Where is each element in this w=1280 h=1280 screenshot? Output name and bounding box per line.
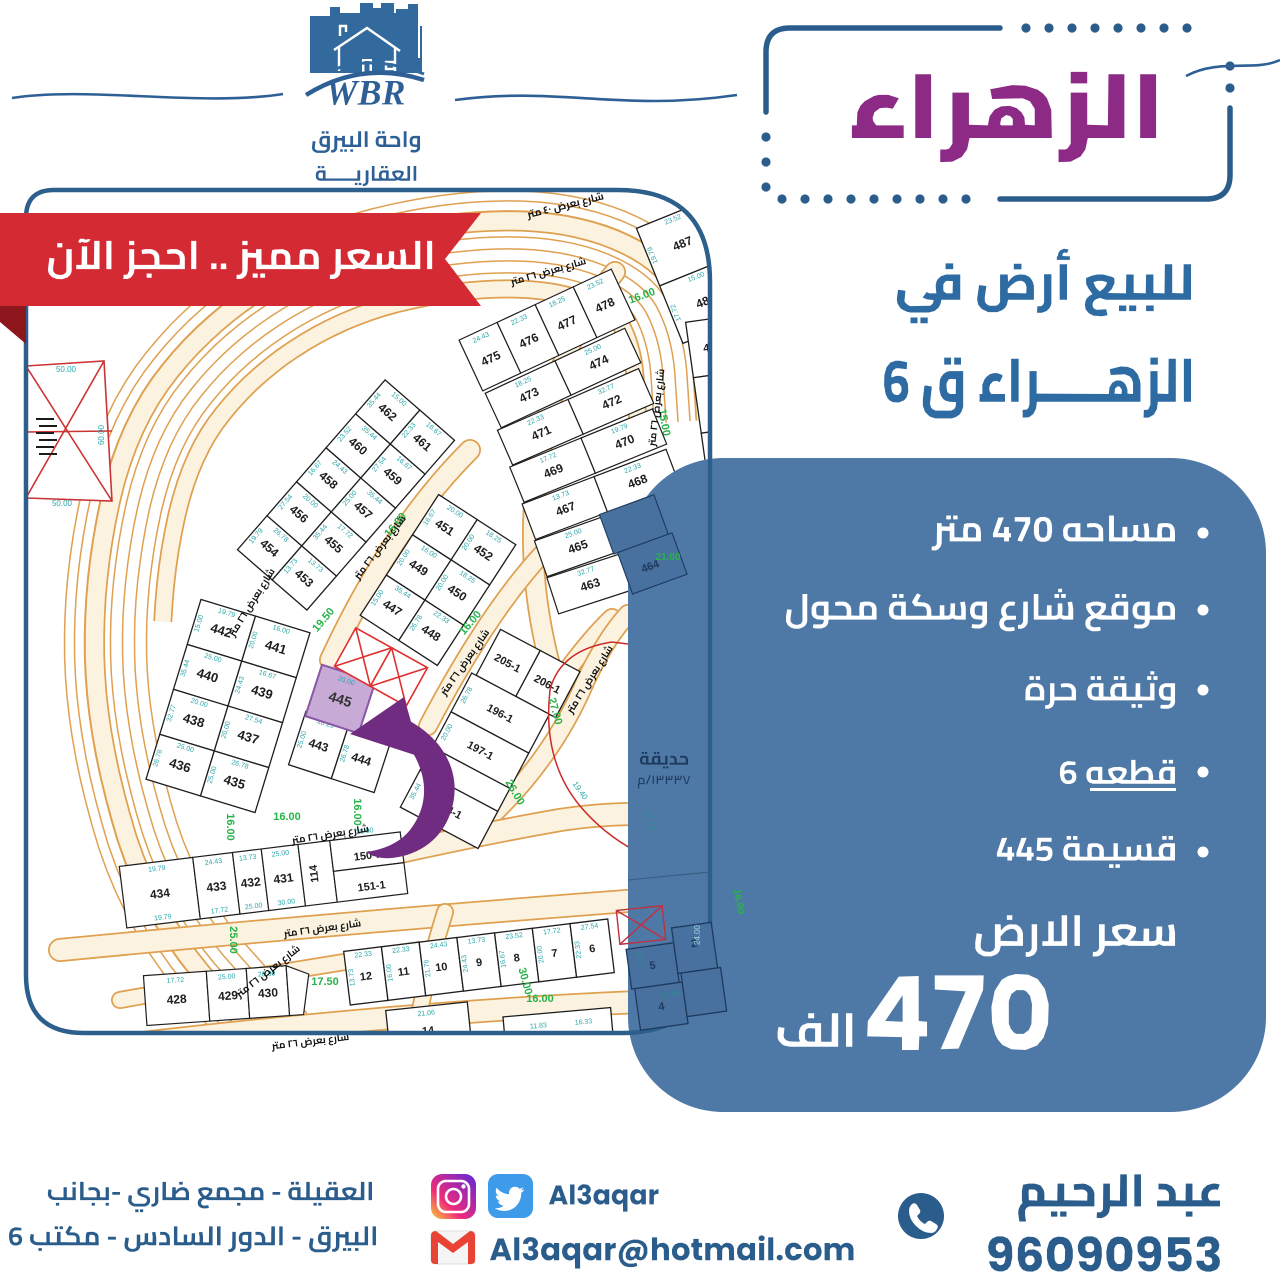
- svg-text:429: 429: [218, 988, 239, 1003]
- svg-text:431: 431: [273, 870, 295, 886]
- svg-text:16.00: 16.00: [224, 813, 236, 841]
- svg-text:24.00: 24.00: [693, 924, 702, 945]
- svg-text:50.00: 50.00: [56, 365, 77, 374]
- svg-text:430: 430: [257, 985, 278, 1000]
- svg-text:433: 433: [206, 879, 228, 895]
- svg-text:16.00: 16.00: [526, 993, 554, 1005]
- svg-text:25.00: 25.00: [218, 973, 236, 981]
- svg-text:434: 434: [149, 885, 171, 901]
- svg-text:11.83: 11.83: [530, 1022, 548, 1030]
- svg-text:25.00: 25.00: [227, 926, 239, 954]
- svg-text:16.00: 16.00: [351, 798, 363, 826]
- svg-text:432: 432: [240, 874, 262, 890]
- svg-text:60.00: 60.00: [97, 424, 106, 445]
- svg-text:12: 12: [359, 970, 373, 983]
- svg-text:17.72: 17.72: [166, 977, 184, 985]
- svg-text:16.00: 16.00: [273, 811, 301, 823]
- svg-text:114: 114: [307, 863, 321, 883]
- svg-text:10: 10: [435, 961, 449, 974]
- svg-text:21.00: 21.00: [655, 552, 680, 563]
- svg-text:17.50: 17.50: [311, 976, 339, 988]
- svg-text:428: 428: [166, 992, 187, 1007]
- svg-text:11: 11: [397, 966, 410, 979]
- svg-text:50.00: 50.00: [52, 499, 73, 508]
